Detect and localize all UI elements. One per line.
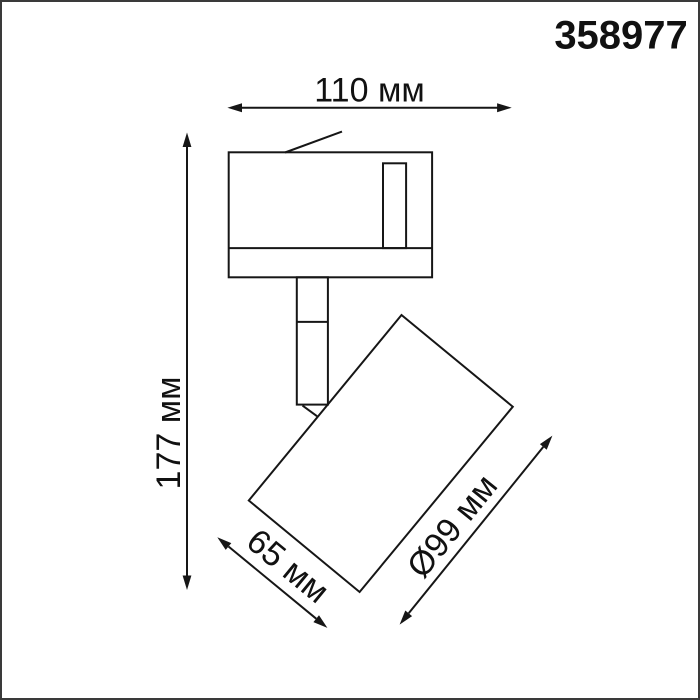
svg-text:358977: 358977 — [554, 14, 687, 58]
svg-text:Ø99 мм: Ø99 мм — [400, 468, 505, 586]
svg-text:177 мм: 177 мм — [150, 377, 188, 490]
svg-text:110 мм: 110 мм — [314, 71, 424, 109]
